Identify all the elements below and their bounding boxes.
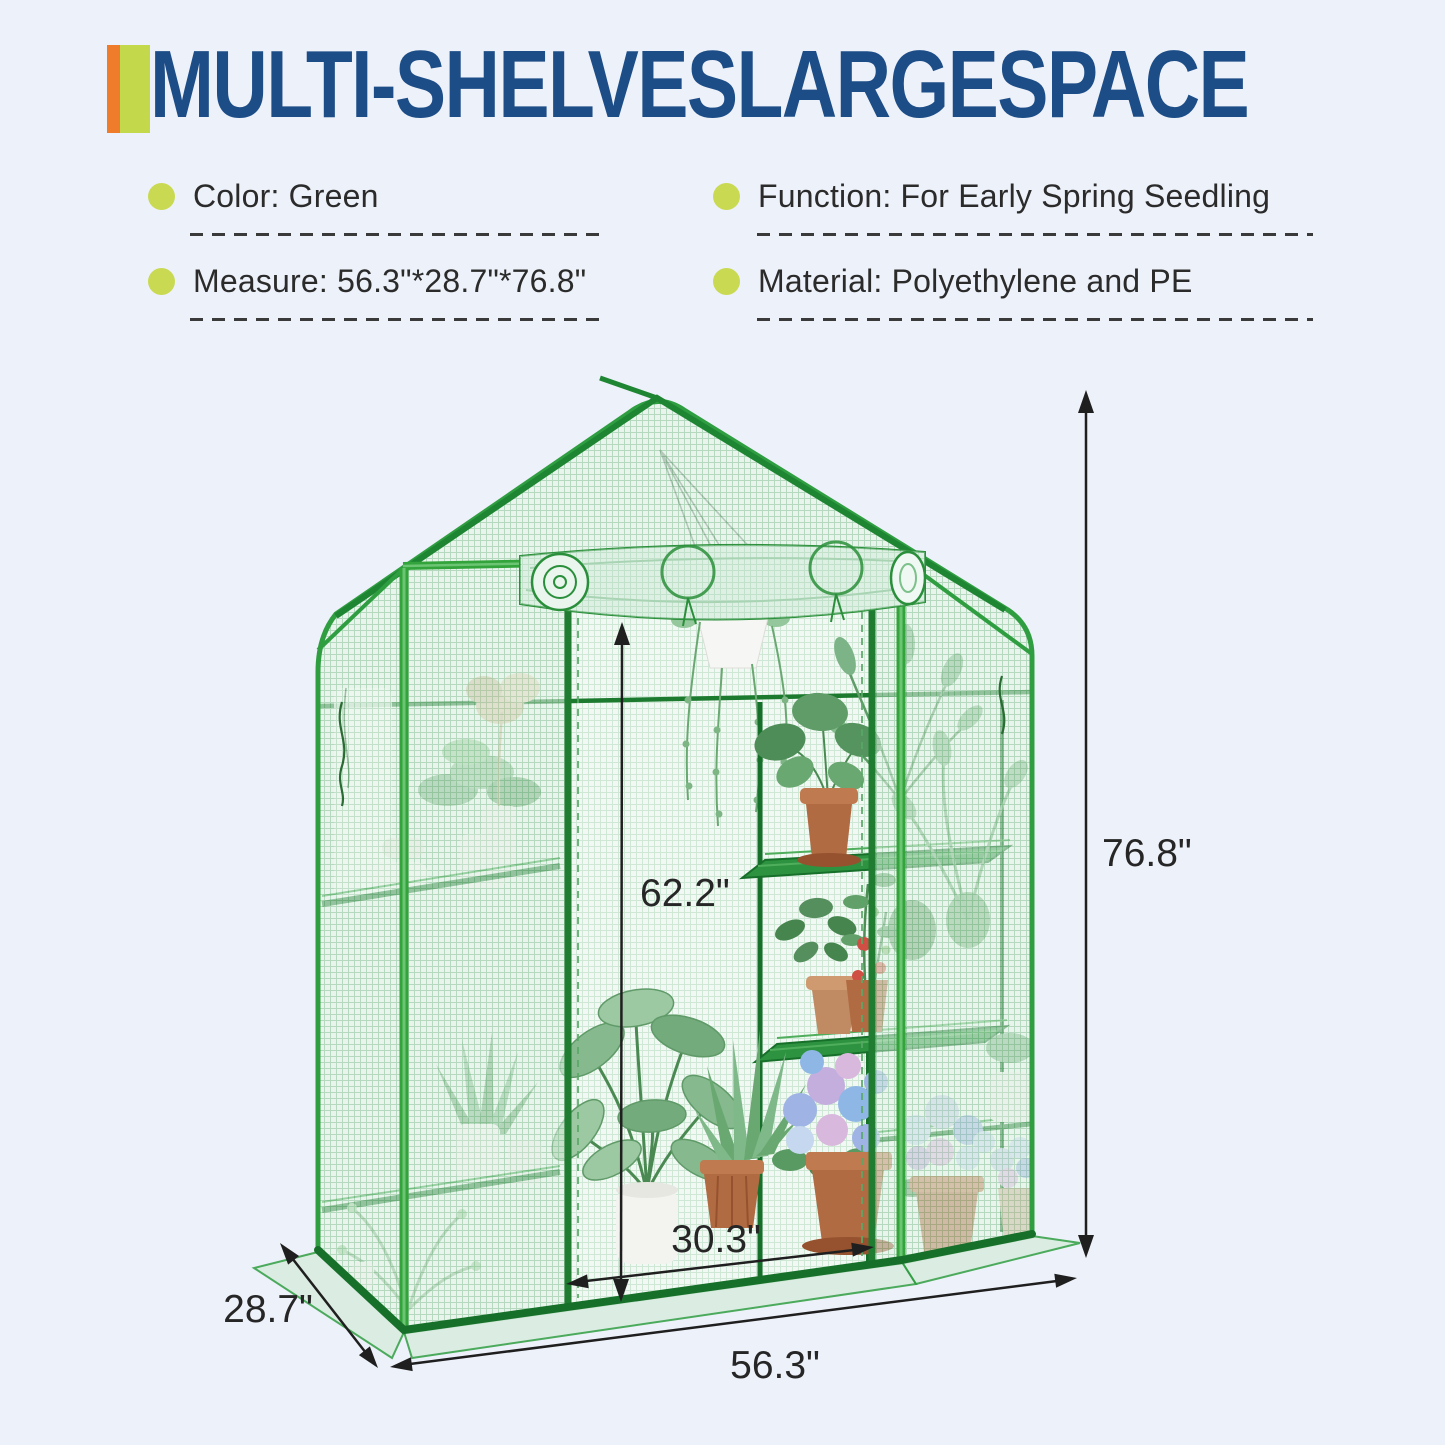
infographic-canvas: MULTI-SHELVESLARGESPACE Color: Green Fun… <box>0 0 1445 1445</box>
label-overall-height: 76.8" <box>1102 832 1192 875</box>
greenhouse-diagram: 76.8" 62.2" 30.3" 56.3" 28.7" <box>0 0 1445 1445</box>
dimension-overall-height <box>1078 390 1094 1258</box>
label-overall-depth: 28.7" <box>223 1288 313 1331</box>
label-interior-height: 62.2" <box>640 872 730 915</box>
greenhouse-illustration <box>254 378 1080 1358</box>
label-door-width: 30.3" <box>671 1218 761 1261</box>
label-overall-width: 56.3" <box>730 1344 820 1387</box>
